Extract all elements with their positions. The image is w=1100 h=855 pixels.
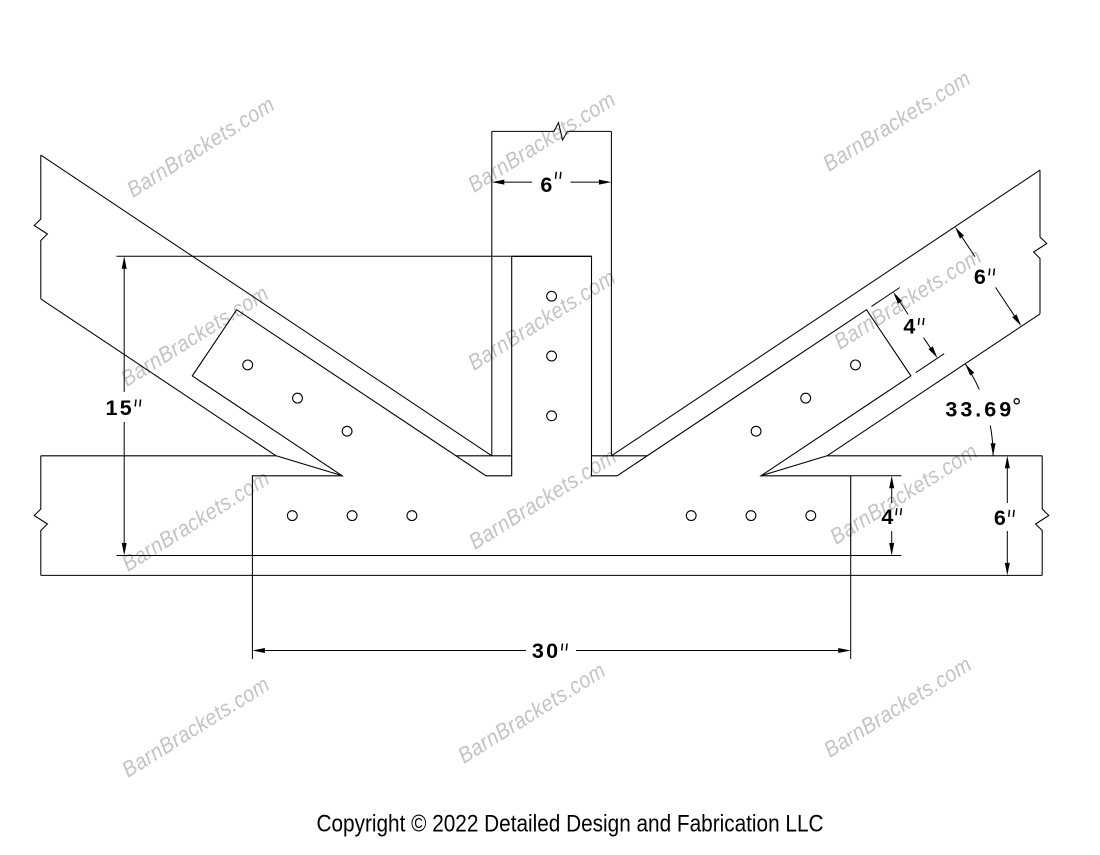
svg-text:15: 15 — [106, 396, 134, 420]
svg-text:30: 30 — [532, 639, 560, 663]
svg-text:6: 6 — [974, 265, 988, 289]
svg-text:6: 6 — [540, 173, 554, 197]
svg-text:4: 4 — [881, 505, 895, 529]
svg-text:33.69: 33.69 — [945, 397, 1014, 421]
svg-text:Copyright © 2022 Detailed Desi: Copyright © 2022 Detailed Design and Fab… — [317, 811, 824, 838]
svg-text:4: 4 — [903, 315, 917, 339]
svg-text:6: 6 — [994, 506, 1008, 530]
